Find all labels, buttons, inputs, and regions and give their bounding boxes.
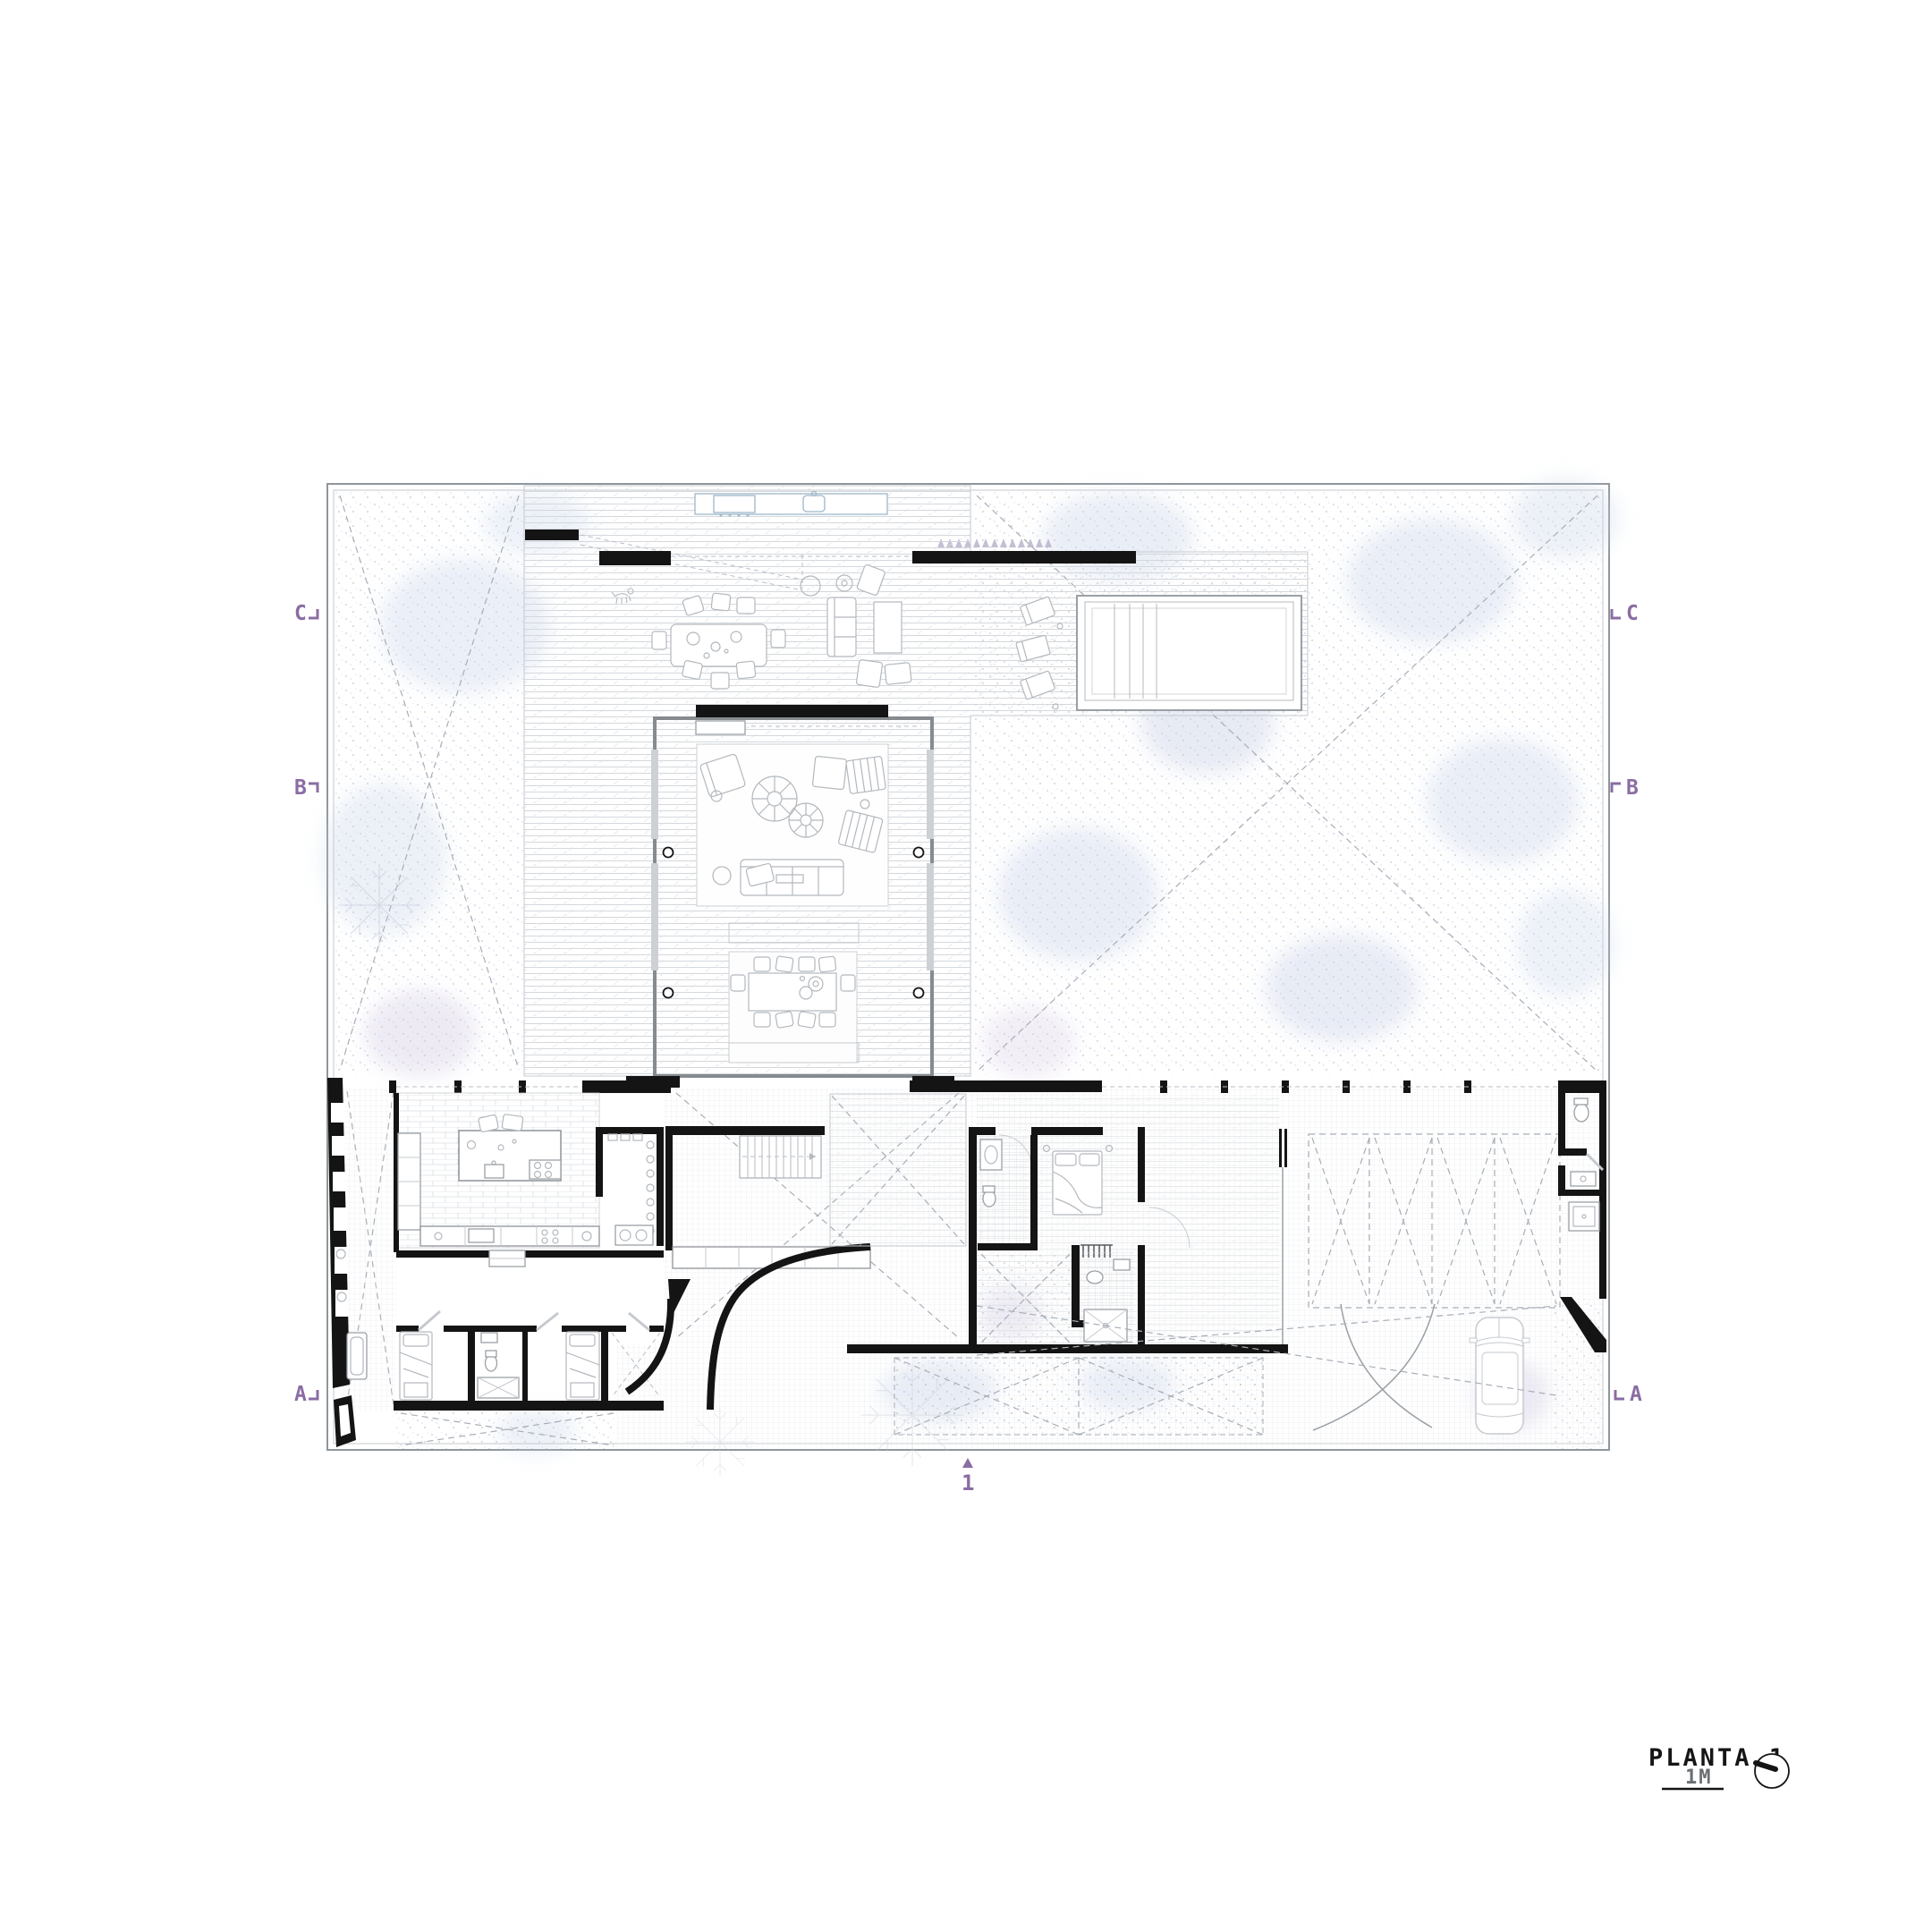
- floor-cushion: [812, 756, 846, 789]
- entrance-number: 1: [962, 1470, 974, 1496]
- sideboard: [696, 721, 745, 734]
- section-letter-right-c: C: [1626, 602, 1640, 625]
- section-mark-icon: [1612, 784, 1621, 792]
- island-sink-icon: [485, 1165, 504, 1178]
- title-block: PLANTA 1 1M: [1648, 1744, 1789, 1789]
- section-letter-left-c: C: [294, 602, 308, 625]
- staircase: [740, 1136, 821, 1178]
- kitchen: [394, 1093, 599, 1252]
- south-wall: [847, 1344, 1288, 1353]
- kitchen-counter-south: [420, 1226, 599, 1246]
- suite-patio: [979, 1252, 1072, 1344]
- single-bed: [566, 1332, 599, 1400]
- floor-plan-svg: C B A C B A 1 PLANTA 1 1M: [0, 0, 1932, 1932]
- sink-icon: [1114, 1259, 1130, 1270]
- toilet-icon: [1574, 1104, 1589, 1122]
- pavilion-north-wall: [696, 705, 888, 717]
- toilet-icon: [1087, 1271, 1103, 1284]
- floor-plan-page: C B A C B A 1 PLANTA 1 1M: [0, 0, 1932, 1932]
- entrance-marker: 1: [962, 1458, 974, 1496]
- ensuite-bath-north: [978, 1135, 1038, 1250]
- section-mark-icon: [309, 609, 318, 618]
- sink-icon: [481, 1333, 497, 1343]
- toilet-icon: [983, 1191, 996, 1207]
- outdoor-kitchen: [695, 492, 887, 517]
- ensuite-bath-south: [1072, 1245, 1134, 1344]
- striped-cushion: [846, 756, 886, 793]
- section-mark-icon: [309, 1390, 318, 1399]
- sink-icon: [1571, 1172, 1596, 1186]
- laundry-appliances: [615, 1225, 653, 1245]
- section-mark-icon: [1612, 609, 1621, 618]
- single-bed: [400, 1332, 432, 1400]
- vanity-icon: [980, 1140, 1002, 1170]
- dining-table: [749, 973, 836, 1011]
- bar-stool: [479, 1114, 499, 1132]
- scale-label: 1M: [1685, 1767, 1713, 1789]
- section-mark-icon: [1615, 1390, 1624, 1399]
- bar-stool: [502, 1114, 523, 1131]
- section-letter-left-b: B: [294, 776, 308, 800]
- south-garden-strip: [894, 1358, 1263, 1435]
- master-bed: [1044, 1146, 1113, 1216]
- toilet-icon: [486, 1355, 497, 1371]
- car: [1470, 1318, 1529, 1434]
- north-arrow-icon: [1755, 1754, 1789, 1788]
- outdoor-dining-table: [671, 624, 767, 666]
- entrance-arrow-icon: [962, 1458, 973, 1468]
- bathtub-icon: [347, 1333, 367, 1379]
- pool: [1077, 596, 1301, 710]
- section-mark-icon: [309, 784, 318, 792]
- section-letter-right-b: B: [1626, 776, 1640, 800]
- section-letter-left-a: A: [294, 1383, 308, 1406]
- section-letter-right-a: A: [1630, 1383, 1643, 1406]
- sofa: [741, 860, 843, 895]
- outdoor-sofa: [827, 597, 856, 657]
- outdoor-sink-icon: [803, 496, 825, 512]
- outdoor-coffee-table: [874, 602, 902, 653]
- grill-icon: [714, 496, 755, 513]
- void-room: [830, 1094, 966, 1246]
- master-suite: [969, 1093, 1287, 1344]
